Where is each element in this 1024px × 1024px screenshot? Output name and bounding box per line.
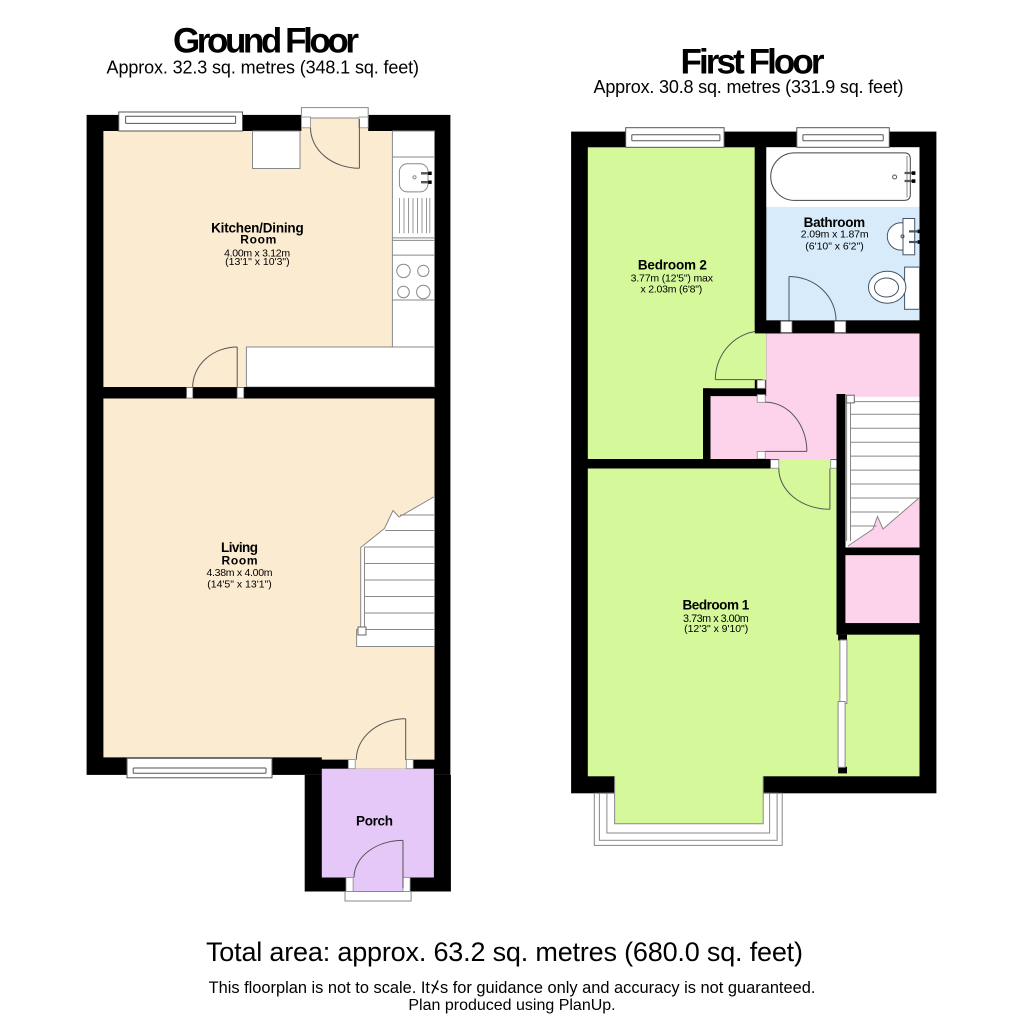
svg-text:x 2.03m (6'8"): x 2.03m (6'8"): [641, 284, 703, 296]
svg-text:Ground Floor: Ground Floor: [173, 22, 359, 61]
svg-text:2.09m x 1.87m: 2.09m x 1.87m: [801, 229, 869, 241]
svg-text:(13'1" x 10'3"): (13'1" x 10'3"): [225, 256, 290, 268]
svg-text:(14'5" x 13'1"): (14'5" x 13'1"): [207, 578, 272, 590]
svg-text:(12'3" x 9'10"): (12'3" x 9'10"): [684, 623, 748, 635]
svg-text:Approx. 32.3 sq. metres (348.1: Approx. 32.3 sq. metres (348.1 sq. feet): [107, 57, 420, 77]
svg-text:Total area: approx. 63.2 sq. m: Total area: approx. 63.2 sq. metres (680…: [206, 937, 803, 967]
svg-text:(6'10" x 6'2"): (6'10" x 6'2"): [805, 240, 863, 252]
svg-text:Approx. 30.8 sq. metres (331.9: Approx. 30.8 sq. metres (331.9 sq. feet): [594, 77, 904, 97]
svg-text:Bedroom 2: Bedroom 2: [638, 257, 707, 272]
svg-text:Bedroom 1: Bedroom 1: [683, 598, 750, 613]
svg-text:Porch: Porch: [356, 813, 393, 828]
svg-text:Room: Room: [222, 553, 258, 567]
svg-text:Room: Room: [240, 232, 276, 246]
svg-text:First Floor: First Floor: [681, 43, 825, 82]
